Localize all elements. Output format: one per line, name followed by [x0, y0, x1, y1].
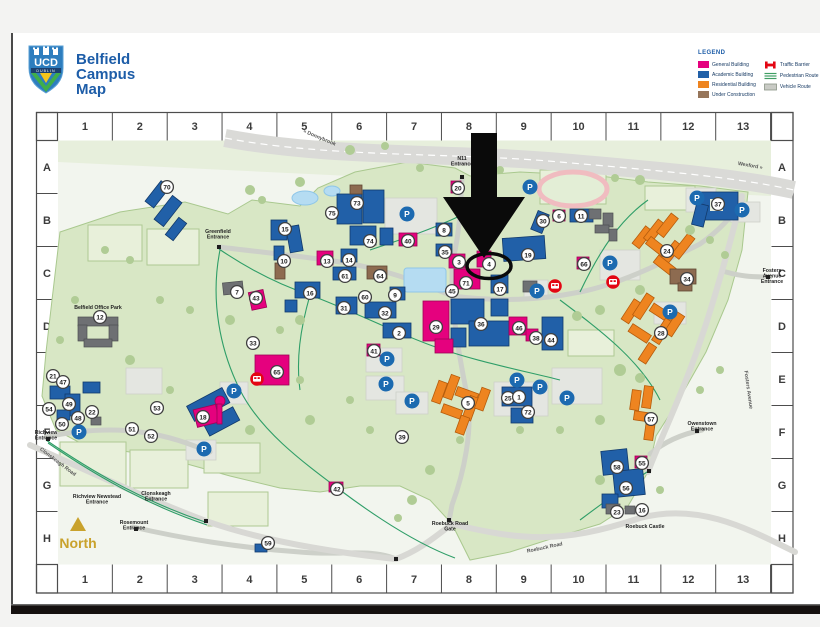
parking-icon: P — [603, 256, 618, 271]
map-marker-13: 13 — [321, 255, 334, 268]
legend-building-types: General BuildingAcademic BuildingResiden… — [698, 61, 756, 98]
svg-text:58: 58 — [613, 464, 621, 471]
map-marker-49: 49 — [63, 398, 76, 411]
grid-col-label-top-1: 1 — [82, 121, 88, 133]
logo-text: UCD — [34, 57, 58, 69]
svg-text:4: 4 — [487, 261, 491, 268]
svg-text:15: 15 — [281, 226, 289, 233]
map-marker-54: 54 — [43, 403, 56, 416]
parking-icon: P — [379, 377, 394, 392]
svg-text:65: 65 — [273, 369, 281, 376]
map-marker-31: 31 — [338, 302, 351, 315]
map-marker-48: 48 — [72, 412, 85, 425]
map-label: ClonskeaghEntrance — [141, 491, 170, 503]
grid-row-label-left-C: C — [43, 268, 51, 280]
legend-title: LEGEND — [698, 50, 810, 56]
legend-item-label: Academic Building — [712, 72, 753, 78]
grid-row-label-left-H: H — [43, 533, 51, 545]
map-marker-56: 56 — [620, 482, 633, 495]
map-marker-57: 57 — [645, 413, 658, 426]
map-marker-23: 23 — [611, 506, 624, 519]
legend-item-label: Under Construction — [712, 92, 755, 98]
svg-text:55: 55 — [638, 460, 646, 467]
map-marker-37: 37 — [712, 198, 725, 211]
legend-item-label: Vehicle Route — [780, 84, 811, 90]
grid-col-label-top-11: 11 — [628, 121, 640, 133]
map-marker-39: 39 — [396, 431, 409, 444]
map-marker-3: 3 — [453, 256, 466, 269]
svg-text:2: 2 — [397, 330, 401, 337]
svg-text:P: P — [514, 375, 520, 385]
map-header: UCD DUBLIN Belfield Campus Map — [28, 44, 135, 97]
svg-text:3: 3 — [457, 259, 461, 266]
parking-icon: P — [72, 425, 87, 440]
map-marker-19: 19 — [522, 249, 535, 262]
map-marker-14: 14 — [343, 254, 356, 267]
svg-text:8: 8 — [442, 227, 446, 234]
svg-text:31: 31 — [340, 305, 348, 312]
map-marker-16: 16 — [304, 287, 317, 300]
svg-text:53: 53 — [153, 405, 161, 412]
svg-text:P: P — [231, 386, 237, 396]
parking-icon: P — [533, 380, 548, 395]
svg-text:61: 61 — [341, 273, 349, 280]
svg-text:45: 45 — [448, 288, 456, 295]
map-marker-6: 6 — [553, 210, 566, 223]
svg-text:52: 52 — [147, 433, 155, 440]
svg-text:P: P — [76, 427, 82, 437]
running-track — [539, 172, 607, 206]
legend-item-label: Pedestrian Route — [780, 73, 819, 79]
legend-item: Under Construction — [698, 91, 756, 98]
map-marker-10: 10 — [278, 255, 291, 268]
svg-text:57: 57 — [647, 416, 655, 423]
map-marker-58: 58 — [611, 461, 624, 474]
map-marker-12: 12 — [94, 311, 107, 324]
map-marker-51: 51 — [126, 423, 139, 436]
grid-col-label-bottom-12: 12 — [682, 574, 694, 586]
svg-text:P: P — [607, 258, 613, 268]
legend-item: Pedestrian Route — [764, 72, 819, 80]
parking-icon: P — [735, 203, 750, 218]
svg-text:38: 38 — [532, 335, 540, 342]
grid-col-label-bottom-6: 6 — [356, 574, 362, 586]
legend-item-label: General Building — [712, 62, 749, 68]
parking-icon: P — [510, 373, 525, 388]
map-marker-66: 66 — [578, 258, 591, 271]
map-marker-20: 20 — [452, 182, 465, 195]
map-marker-9: 9 — [389, 289, 402, 302]
svg-text:36: 36 — [477, 321, 485, 328]
map-marker-70: 70 — [161, 181, 174, 194]
svg-text:P: P — [404, 209, 410, 219]
svg-text:72: 72 — [524, 409, 532, 416]
map-label: OwenstownEntrance — [687, 421, 716, 433]
svg-text:5: 5 — [466, 400, 470, 407]
map-marker-24: 24 — [661, 245, 674, 258]
page-bottom-edge — [11, 604, 820, 614]
legend-swatch — [698, 81, 709, 88]
svg-text:19: 19 — [524, 252, 532, 259]
map-area: 7020733775611301587440243519101314346661… — [30, 129, 795, 565]
map-marker-5: 5 — [462, 397, 475, 410]
grid-col-label-bottom-5: 5 — [301, 574, 307, 586]
bus-icon — [548, 279, 562, 293]
map-title: Belfield Campus Map — [76, 52, 135, 97]
grid-col-label-top-8: 8 — [466, 121, 472, 133]
grid-row-label-right-F: F — [779, 427, 786, 439]
grid-col-label-top-4: 4 — [246, 121, 253, 133]
svg-text:54: 54 — [45, 406, 53, 413]
svg-text:33: 33 — [249, 340, 257, 347]
map-marker-65: 65 — [271, 366, 284, 379]
svg-text:P: P — [383, 379, 389, 389]
svg-text:P: P — [527, 182, 533, 192]
map-marker-11: 11 — [575, 210, 588, 223]
grid-col-label-bottom-9: 9 — [521, 574, 527, 586]
grid-col-label-bottom-10: 10 — [572, 574, 584, 586]
svg-text:44: 44 — [547, 337, 555, 344]
parking-icon: P — [380, 352, 395, 367]
svg-text:P: P — [694, 193, 700, 203]
map-marker-8: 8 — [438, 224, 451, 237]
svg-text:59: 59 — [264, 540, 272, 547]
svg-text:21: 21 — [49, 373, 57, 380]
grid-col-label-top-10: 10 — [572, 121, 584, 133]
map-marker-2: 2 — [393, 327, 406, 340]
map-marker-33: 33 — [247, 337, 260, 350]
map-label: RosemountEntrance — [120, 520, 149, 532]
svg-text:32: 32 — [381, 310, 389, 317]
svg-text:9: 9 — [393, 292, 397, 299]
svg-text:34: 34 — [683, 276, 691, 283]
map-marker-73: 73 — [351, 197, 364, 210]
svg-text:43: 43 — [252, 295, 260, 302]
parking-icon: P — [560, 391, 575, 406]
north-label: North — [59, 535, 96, 551]
svg-text:22: 22 — [88, 409, 96, 416]
svg-text:39: 39 — [398, 434, 406, 441]
map-marker-61: 61 — [339, 270, 352, 283]
svg-text:25: 25 — [504, 395, 512, 402]
grid-row-label-left-B: B — [43, 215, 51, 227]
svg-text:13: 13 — [323, 258, 331, 265]
svg-text:16: 16 — [306, 290, 314, 297]
grid-col-label-top-9: 9 — [521, 121, 527, 133]
parking-icon: P — [405, 394, 420, 409]
map-marker-15: 15 — [279, 223, 292, 236]
map-marker-45: 45 — [446, 285, 459, 298]
svg-text:24: 24 — [663, 248, 671, 255]
map-marker-53: 53 — [151, 402, 164, 415]
parking-icon: P — [197, 442, 212, 457]
svg-text:7: 7 — [235, 289, 239, 296]
grid-col-label-top-12: 12 — [682, 121, 694, 133]
svg-text:41: 41 — [370, 348, 378, 355]
map-marker-72: 72 — [522, 406, 535, 419]
svg-text:35: 35 — [441, 249, 449, 256]
svg-text:P: P — [739, 205, 745, 215]
title-line-2: Campus — [76, 67, 135, 82]
svg-text:29: 29 — [432, 324, 440, 331]
legend-item-label: Residential Building — [712, 82, 756, 88]
svg-text:28: 28 — [657, 330, 665, 337]
parking-icon: P — [400, 207, 415, 222]
legend-item: Traffic Barrier — [764, 61, 819, 69]
legend: LEGEND General BuildingAcademic Building… — [698, 50, 810, 98]
map-marker-46: 46 — [513, 322, 526, 335]
svg-text:18: 18 — [199, 414, 207, 421]
svg-text:50: 50 — [58, 421, 66, 428]
svg-text:P: P — [537, 382, 543, 392]
grid-row-label-right-D: D — [778, 321, 786, 333]
svg-text:30: 30 — [539, 218, 547, 225]
grid-row-label-left-G: G — [43, 480, 52, 492]
grid-col-label-top-13: 13 — [737, 121, 749, 133]
svg-text:P: P — [667, 307, 673, 317]
map-marker-7: 7 — [231, 286, 244, 299]
map-marker-16: 16 — [636, 504, 649, 517]
map-marker-43: 43 — [250, 292, 263, 305]
map-marker-60: 60 — [359, 291, 372, 304]
grid-col-label-top-6: 6 — [356, 121, 362, 133]
svg-text:70: 70 — [163, 184, 171, 191]
bus-icon — [250, 372, 264, 386]
svg-text:23: 23 — [613, 509, 621, 516]
grid-row-label-right-A: A — [778, 162, 786, 174]
title-line-1: Belfield — [76, 52, 135, 67]
map-marker-74: 74 — [364, 235, 377, 248]
map-marker-28: 28 — [655, 327, 668, 340]
svg-text:40: 40 — [404, 238, 412, 245]
traffic-barrier-icon — [764, 61, 777, 69]
svg-text:P: P — [384, 354, 390, 364]
svg-text:48: 48 — [74, 415, 82, 422]
bus-icon — [606, 275, 620, 289]
svg-text:14: 14 — [345, 257, 353, 264]
grid-col-label-bottom-11: 11 — [628, 574, 640, 586]
svg-text:1: 1 — [517, 394, 521, 401]
map-marker-71: 71 — [460, 277, 473, 290]
legend-route-types: Traffic BarrierPedestrian RouteVehicle R… — [764, 61, 819, 98]
legend-swatch — [698, 71, 709, 78]
svg-text:37: 37 — [714, 201, 722, 208]
legend-item: Academic Building — [698, 71, 756, 78]
map-marker-32: 32 — [379, 307, 392, 320]
svg-text:71: 71 — [462, 280, 470, 287]
svg-text:42: 42 — [333, 486, 341, 493]
grid-col-label-top-3: 3 — [192, 121, 198, 133]
map-marker-29: 29 — [430, 321, 443, 334]
svg-text:64: 64 — [376, 273, 384, 280]
grid-col-label-bottom-8: 8 — [466, 574, 472, 586]
map-marker-22: 22 — [86, 406, 99, 419]
map-marker-42: 42 — [331, 483, 344, 496]
title-line-3: Map — [76, 82, 135, 97]
legend-item: Residential Building — [698, 81, 756, 88]
map-marker-75: 75 — [326, 207, 339, 220]
ucd-logo: UCD DUBLIN — [28, 44, 64, 96]
parking-icon: P — [227, 384, 242, 399]
svg-text:51: 51 — [128, 426, 136, 433]
svg-text:10: 10 — [280, 258, 288, 265]
map-marker-52: 52 — [145, 430, 158, 443]
svg-text:16: 16 — [638, 507, 646, 514]
grid-col-label-top-7: 7 — [411, 121, 417, 133]
map-marker-59: 59 — [262, 537, 275, 550]
map-marker-30: 30 — [537, 215, 550, 228]
map-marker-41: 41 — [368, 345, 381, 358]
map-marker-44: 44 — [545, 334, 558, 347]
grid-col-label-top-2: 2 — [137, 121, 143, 133]
map-marker-36: 36 — [475, 318, 488, 331]
map-label: Belfield Office Park — [74, 305, 122, 311]
parking-icon: P — [663, 305, 678, 320]
grid-row-label-right-G: G — [778, 480, 787, 492]
svg-text:56: 56 — [622, 485, 630, 492]
map-label: Roebuck Castle — [626, 524, 665, 530]
grid-col-label-bottom-13: 13 — [737, 574, 749, 586]
svg-text:74: 74 — [366, 238, 374, 245]
legend-item-label: Traffic Barrier — [780, 62, 810, 68]
legend-item: Vehicle Route — [764, 83, 819, 91]
grid-col-label-bottom-3: 3 — [192, 574, 198, 586]
svg-text:12: 12 — [96, 314, 104, 321]
svg-text:P: P — [409, 396, 415, 406]
svg-text:47: 47 — [59, 379, 67, 386]
svg-text:60: 60 — [361, 294, 369, 301]
grid-col-label-bottom-7: 7 — [411, 574, 417, 586]
map-marker-55: 55 — [636, 457, 649, 470]
legend-swatch — [698, 91, 709, 98]
grid-col-label-bottom-4: 4 — [246, 574, 253, 586]
legend-swatch — [698, 61, 709, 68]
svg-text:17: 17 — [496, 286, 504, 293]
svg-text:66: 66 — [580, 261, 588, 268]
map-marker-35: 35 — [439, 246, 452, 259]
grid-row-label-right-B: B — [778, 215, 786, 227]
svg-text:73: 73 — [353, 200, 361, 207]
svg-text:P: P — [564, 393, 570, 403]
map-marker-4: 4 — [483, 258, 496, 271]
svg-text:6: 6 — [557, 213, 561, 220]
grid-row-label-right-E: E — [778, 374, 785, 386]
grid-col-label-bottom-2: 2 — [137, 574, 143, 586]
svg-text:49: 49 — [65, 401, 73, 408]
parking-icon: P — [523, 180, 538, 195]
svg-text:P: P — [534, 286, 540, 296]
map-marker-38: 38 — [530, 332, 543, 345]
map-marker-50: 50 — [56, 418, 69, 431]
legend-item: General Building — [698, 61, 756, 68]
parking-icon: P — [690, 191, 705, 206]
svg-text:11: 11 — [578, 213, 585, 220]
grid-col-label-bottom-1: 1 — [82, 574, 88, 586]
svg-text:46: 46 — [515, 325, 523, 332]
map-marker-40: 40 — [402, 235, 415, 248]
map-marker-34: 34 — [681, 273, 694, 286]
logo-subtext: DUBLIN — [36, 69, 55, 73]
vehicle-route-icon — [764, 83, 777, 91]
map-marker-47: 47 — [57, 376, 70, 389]
grid-row-label-left-A: A — [43, 162, 51, 174]
map-marker-1: 1 — [513, 391, 526, 404]
parking-icon: P — [530, 284, 545, 299]
svg-text:20: 20 — [454, 185, 462, 192]
svg-text:75: 75 — [328, 210, 336, 217]
map-marker-17: 17 — [494, 283, 507, 296]
map-marker-64: 64 — [374, 270, 387, 283]
map-marker-18: 18 — [197, 411, 210, 424]
map-label: FostersAvenueEntrance — [761, 268, 783, 285]
svg-text:P: P — [201, 444, 207, 454]
map-label: RichviewEntrance — [35, 430, 58, 442]
pedestrian-route-icon — [764, 72, 777, 80]
map-label: GreenfieldEntrance — [205, 229, 231, 241]
